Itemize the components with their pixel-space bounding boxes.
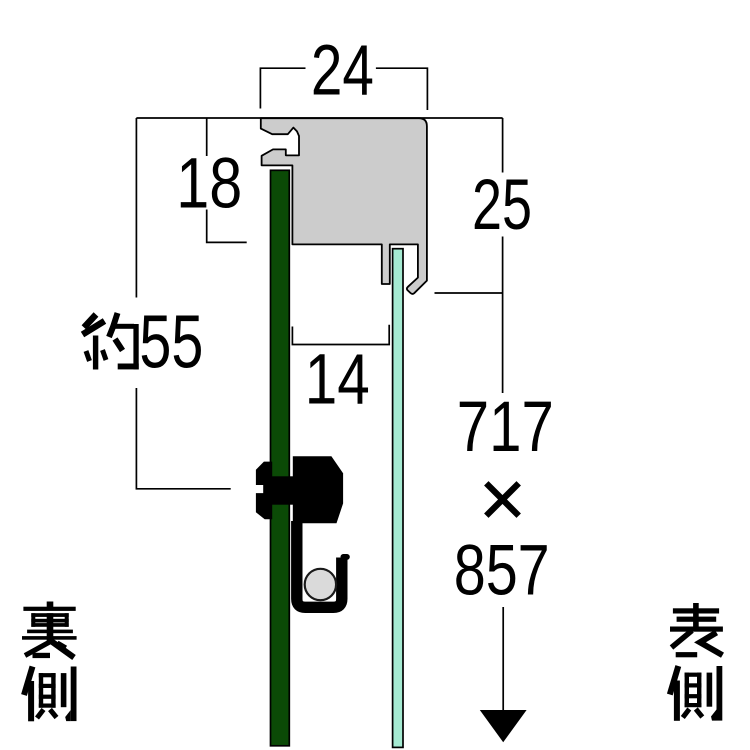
svg-text:25: 25 xyxy=(472,166,532,245)
svg-text:857: 857 xyxy=(454,532,550,611)
svg-text:24: 24 xyxy=(311,32,374,111)
svg-text:55: 55 xyxy=(139,300,203,384)
svg-text:717: 717 xyxy=(457,388,554,467)
svg-text:14: 14 xyxy=(305,341,370,420)
svg-text:18: 18 xyxy=(176,145,242,224)
